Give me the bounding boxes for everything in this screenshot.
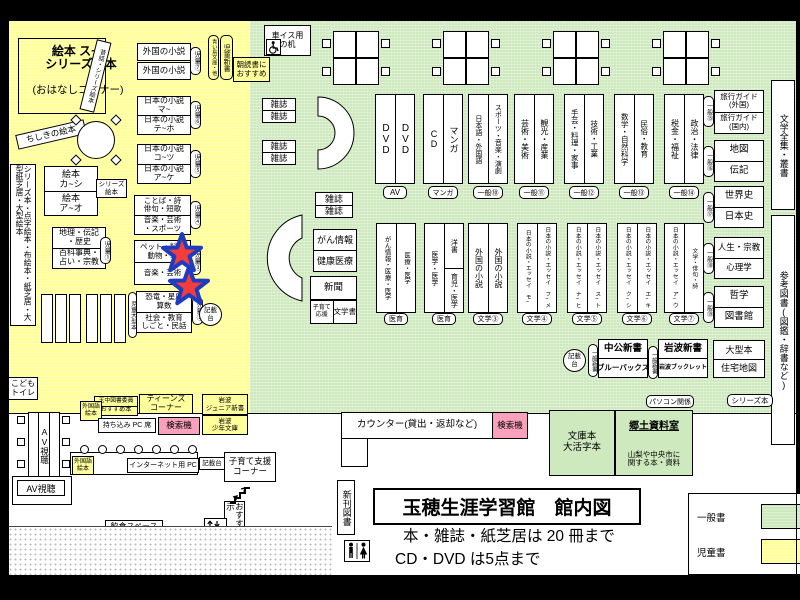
bungaku4-tag: 文学④ bbox=[522, 313, 552, 325]
jido5-tag: 児童⑤ bbox=[190, 150, 201, 178]
bungaku7-tag: 文学⑦ bbox=[669, 313, 699, 325]
curved-browsing-counter-mid bbox=[256, 212, 304, 304]
study-table bbox=[576, 31, 599, 58]
av-viewing-label-2: AV視聴 bbox=[26, 482, 55, 495]
shelf-b1 bbox=[86, 294, 98, 343]
legend-general-swatch bbox=[761, 504, 800, 529]
chair bbox=[601, 39, 610, 48]
av-viewing-table: AV視聴 bbox=[28, 412, 60, 478]
shelf-a2 bbox=[55, 294, 67, 343]
map-title: 玉穂生涯学習館 館内図 bbox=[373, 488, 641, 525]
study-table bbox=[686, 58, 709, 85]
pc-stool bbox=[170, 445, 179, 454]
study-table bbox=[356, 58, 379, 85]
chair bbox=[381, 67, 390, 76]
toilet-icon bbox=[344, 540, 370, 562]
bunkobon-box: 文庫本大活字本 bbox=[549, 410, 615, 476]
jido-shinsho-tag: 児童新書 bbox=[220, 35, 233, 80]
pc-stool bbox=[134, 445, 143, 454]
chair bbox=[652, 67, 661, 76]
chair bbox=[322, 39, 331, 48]
jido1-tag: 児童① bbox=[100, 237, 111, 264]
ippan13-tag: 一般⑬ bbox=[619, 186, 649, 199]
nihon-essay-a-shelf: 日本の小説・エッセイ ア~ウ文学・俳句・詩 bbox=[664, 223, 704, 313]
star-decoration-icon bbox=[155, 230, 227, 312]
chair bbox=[542, 39, 551, 48]
study-table bbox=[663, 58, 686, 85]
kotoba-shi-box: ことば・詩俳句・短歌音楽・芸術・スポーツ bbox=[134, 195, 191, 235]
internet-pc-label: インターネット用 PC bbox=[127, 458, 199, 473]
chair bbox=[652, 39, 661, 48]
jinsei-box: 人生・宗教心理学 bbox=[714, 237, 764, 279]
chair bbox=[17, 460, 25, 468]
zeikin-shelf: 税金・福祉政治・法律 bbox=[664, 94, 704, 184]
tetsugaku-box: 哲学図書館 bbox=[714, 286, 764, 328]
sekaishi-box: 世界史日本史 bbox=[714, 186, 764, 228]
ehon-ka-shi-box: 絵本カ~シ絵本ア~オ bbox=[44, 166, 98, 216]
bungaku3-tag: 文学③ bbox=[473, 313, 503, 325]
sanko-tosho-shelf: 参考図書(図鑑・辞書など) bbox=[771, 215, 795, 445]
dining-space-area bbox=[8, 526, 332, 576]
bungaku-zenshu-shelf: 文学全集・叢書 bbox=[771, 80, 795, 210]
pc-stool bbox=[116, 445, 125, 454]
chair bbox=[432, 67, 441, 76]
shinbun-box: 新聞 bbox=[310, 276, 357, 300]
iwanami-junior-box: 岩波ジュニア新書 bbox=[202, 394, 248, 415]
shelf-b3 bbox=[114, 294, 126, 343]
chair bbox=[601, 67, 610, 76]
shelf-b2 bbox=[100, 294, 112, 343]
ippan19-tag: 一般⑲ bbox=[703, 292, 714, 323]
study-table bbox=[576, 58, 599, 85]
shugei-shelf: 手芸・料理・家事技術・工業 bbox=[564, 94, 604, 184]
ohanashi-corner-label: (おはなしコーナー) bbox=[20, 84, 136, 98]
nihon-essay-mo-shelf: 日本の小説・エッセイ モ~日本の小説・エッセイ フ~メ bbox=[517, 223, 557, 313]
kensakuki-box-2: 検索機 bbox=[158, 417, 200, 435]
nihon-essay-na-shelf: 日本の小説・エッセイ ナ~ヒ日本の小説・エッセイ ス~ト bbox=[567, 223, 607, 313]
lending-note-1: 本・雑誌・紙芝居は 20 冊まで bbox=[403, 524, 615, 546]
legend-general-label: 一般書 bbox=[697, 510, 726, 524]
chair bbox=[491, 39, 500, 48]
study-table bbox=[356, 31, 379, 58]
nihon-shosetsu-ko-box: 日本の小説コ~ツ日本の小説ア~ケ bbox=[137, 144, 191, 184]
kosodate-bungaku-box: 子育て応援文学書 bbox=[310, 300, 357, 324]
legend-children-label: 児童書 bbox=[697, 545, 726, 559]
chair bbox=[381, 39, 390, 48]
igaku-yosho-shelf: 医学・医学洋書育児・医学 bbox=[424, 223, 464, 313]
counter-box: カウンター(貸出・返却など) bbox=[341, 412, 493, 439]
bungaku6-tag: 文学⑥ bbox=[622, 313, 652, 325]
pc-stool bbox=[188, 445, 197, 454]
dvd-shelf: DVDDVD bbox=[375, 94, 415, 184]
nihongo-shelf: 日本語・外国語スポーツ・音楽・演劇 bbox=[468, 94, 508, 184]
chair bbox=[17, 438, 25, 446]
gaikoku-shosetsu-shelf-2: 外国の小説 bbox=[137, 62, 191, 80]
shinkan-tosho-box: 新刊図書 bbox=[337, 480, 355, 535]
lending-note-2: CD・DVD は5点まで bbox=[395, 547, 541, 569]
study-table bbox=[466, 31, 489, 58]
counter-stub bbox=[341, 438, 368, 467]
gaikoku-shosetsu-shelf-3: 外国の小説外国の小説 bbox=[468, 223, 508, 313]
zasshi-box-1: 雑誌雑誌 bbox=[262, 98, 296, 123]
ippan14-tag: 一般⑭ bbox=[669, 186, 699, 199]
chair bbox=[62, 416, 70, 424]
ippan12-tag: 一般⑫ bbox=[569, 186, 599, 199]
shelf-a1 bbox=[41, 294, 53, 343]
chair bbox=[322, 67, 331, 76]
chair bbox=[432, 39, 441, 48]
zasshi-box-2: 雑誌雑誌 bbox=[262, 140, 296, 165]
kisaidai-circle-2: 記載台 bbox=[563, 349, 586, 372]
ippan17-tag: 一般⑰ bbox=[703, 192, 714, 223]
ehon-su-wa-label: 絵本 ス~ワシリーズ絵本 bbox=[26, 42, 136, 74]
shelf-a3 bbox=[69, 294, 81, 343]
kensakuki-box-1: 検索機 bbox=[492, 412, 528, 439]
chuko-shinsho-box: 中公新書ブルーバックス bbox=[598, 339, 648, 378]
round-table bbox=[77, 121, 115, 159]
ippan16-tag: 一般⑯ bbox=[703, 146, 714, 177]
ippan10-tag: 一般⑩ bbox=[473, 186, 503, 199]
nihon-essay-ku-shelf: 日本の小説・エッセイ ク~シ日本の小説・エッセイ エ~キ bbox=[617, 223, 657, 313]
kosodate-shien-box: 子育て支援コーナー bbox=[224, 452, 276, 482]
iwanami-shinsho-box: 岩波新書岩波ブックレット bbox=[658, 339, 708, 378]
iwanami-shonen-box: 岩波少年文庫 bbox=[202, 415, 248, 435]
chair bbox=[62, 438, 70, 446]
chair bbox=[62, 460, 70, 468]
chair bbox=[17, 416, 25, 424]
legend-row-general: 一般書 bbox=[697, 504, 800, 529]
asadokusho-box: 朝読書におすすめ bbox=[233, 57, 270, 82]
pc-stool bbox=[152, 445, 161, 454]
manga-tag: マンガ bbox=[428, 186, 458, 199]
kodomo-toilet-box: こどもトイレ bbox=[8, 377, 38, 400]
chair bbox=[491, 67, 500, 76]
geijutsu-shelf: 芸術・美術観光・産業 bbox=[514, 94, 554, 184]
ryoko-guide-box: 旅行ガイド(外国)旅行ガイド(国内) bbox=[714, 90, 764, 134]
teens-corner-box: ティーンズコーナー bbox=[139, 394, 193, 414]
nihon-shosetsu-ma-box: 日本の小説マ~日本の小説テ~ホ bbox=[137, 96, 191, 135]
av-viewing-label: AV視聴 bbox=[40, 427, 49, 464]
wheelchair-icon bbox=[266, 39, 281, 55]
library-floor-map: 絵本 ス~ワシリーズ絵本(おはなしコーナー)昔話・シリーズ絵本ちしきの絵本シリー… bbox=[0, 0, 800, 600]
pasokon-kankei-tag: パソコン関係 bbox=[646, 395, 694, 408]
ippan-shinsho-tag-2: 一般新書 bbox=[648, 346, 658, 379]
curved-browsing-counter-top bbox=[316, 94, 360, 172]
mochikomi-pc-box: 持ち込み PC 席 bbox=[98, 418, 156, 433]
gan-joho-box: がん情報健康医療 bbox=[313, 229, 357, 272]
legend: 一般書 児童書 bbox=[688, 493, 800, 575]
bungaku5-tag: 文学⑤ bbox=[572, 313, 602, 325]
chair bbox=[542, 67, 551, 76]
study-table bbox=[553, 58, 576, 85]
sugaku-shelf: 数学・自然科学民俗・教育 bbox=[614, 94, 654, 184]
ippan11-tag: 一般⑪ bbox=[519, 186, 549, 199]
jido7-tag: 児童⑦ bbox=[190, 47, 201, 75]
av-tag: AV bbox=[383, 186, 407, 199]
kyodo-shiryoshitsu-box: 郷土資料室山梨や中央市に関する本・資料 bbox=[615, 410, 693, 476]
study-table bbox=[686, 31, 709, 58]
aoitori-bunko-tag: 青い鳥文庫・他 bbox=[208, 35, 219, 80]
study-table bbox=[443, 31, 466, 58]
cd-manga-shelf: CDマンガ bbox=[423, 94, 463, 184]
series-bon-tag: シリーズ本 bbox=[727, 394, 773, 407]
series-ehon-tag: シリーズ絵本 bbox=[96, 179, 127, 198]
av-viewing-label-2-box: AV視聴 bbox=[17, 480, 65, 496]
ippan15-tag: 一般⑮ bbox=[703, 96, 714, 127]
jido6-tag: 児童⑥ bbox=[190, 101, 201, 129]
iiku-tag-2: 医育 bbox=[432, 313, 456, 325]
study-table bbox=[333, 58, 356, 85]
kisaidai-box-3: 記載台 bbox=[199, 457, 225, 470]
series-tenji-ehon-shelf: シリーズ本・点字絵本・布絵本・紙芝居・大型紙芝居・大型絵本 bbox=[10, 164, 36, 326]
jido4-tag: 児童④ bbox=[190, 201, 201, 229]
legend-row-children: 児童書 bbox=[697, 539, 800, 564]
gaikoku-shosetsu-shelf-1: 外国の小説 bbox=[137, 43, 191, 61]
study-table bbox=[333, 31, 356, 58]
study-table bbox=[443, 58, 466, 85]
gaikokugo-ehon-box-2: 外国語絵本 bbox=[72, 456, 94, 475]
legend-children-swatch bbox=[761, 539, 800, 564]
study-table bbox=[466, 58, 489, 85]
ogatabon-box: 大型本住宅地図 bbox=[713, 340, 765, 378]
study-table bbox=[553, 31, 576, 58]
pc-stool bbox=[98, 445, 107, 454]
chizu-denki-box: 地図伝記 bbox=[714, 140, 764, 182]
iiku-tag-1: 医育 bbox=[384, 313, 408, 325]
study-table bbox=[663, 31, 686, 58]
zasshi-box-3: 雑誌雑誌 bbox=[315, 192, 353, 218]
stairs-icon bbox=[227, 483, 253, 505]
chiri-denki-box: 地理・伝記・歴史百科事典・占い・宗教 bbox=[52, 227, 106, 269]
pc-stool bbox=[80, 445, 89, 454]
chair bbox=[711, 39, 720, 48]
chair bbox=[711, 67, 720, 76]
gan-iryo-shelf: がん情報・医療・医学医療・医学 bbox=[376, 223, 416, 313]
ippan18-tag: 一般⑱ bbox=[703, 243, 714, 274]
